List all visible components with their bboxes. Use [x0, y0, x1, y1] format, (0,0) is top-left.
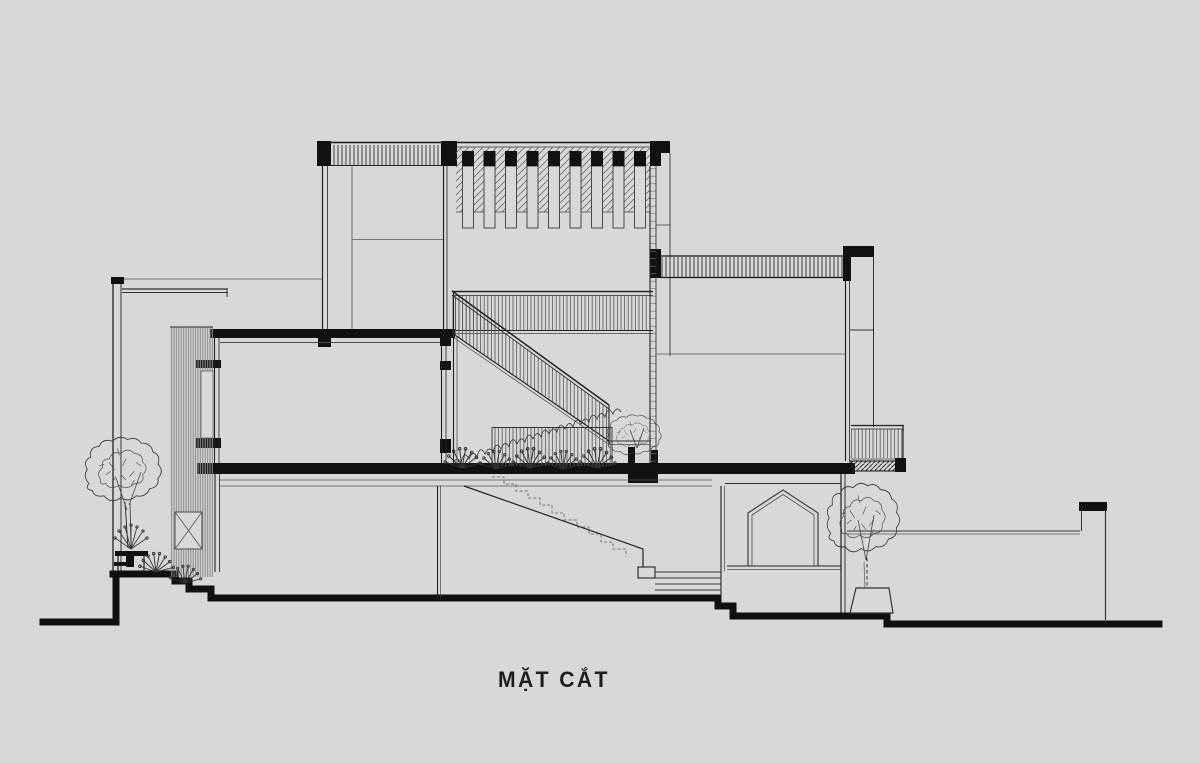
screen-door-slot: [201, 371, 213, 438]
section-drawing-sheet: MẶT CẮT: [0, 0, 1200, 763]
upper-floor-slab: [210, 329, 455, 338]
pergola-louver-slats: [462, 151, 646, 228]
section-drawing: [0, 0, 1200, 763]
slab-downstand: [628, 474, 658, 483]
balcony: [850, 425, 906, 472]
louver-screen-facade: [170, 327, 213, 577]
balcony-railing: [851, 429, 903, 458]
roof-column-left: [317, 141, 331, 166]
drawing-title: MẶT CẮT: [498, 667, 610, 693]
roof-column-right: [441, 141, 457, 166]
roof-pergola: [456, 147, 652, 228]
screen-signboard: [175, 512, 202, 549]
balcony-slab-hatch: [850, 461, 897, 471]
roof-slab-hatch: [331, 145, 441, 165]
void-planter-wall-left: [628, 447, 635, 475]
right-roof-hatch: [661, 257, 843, 277]
